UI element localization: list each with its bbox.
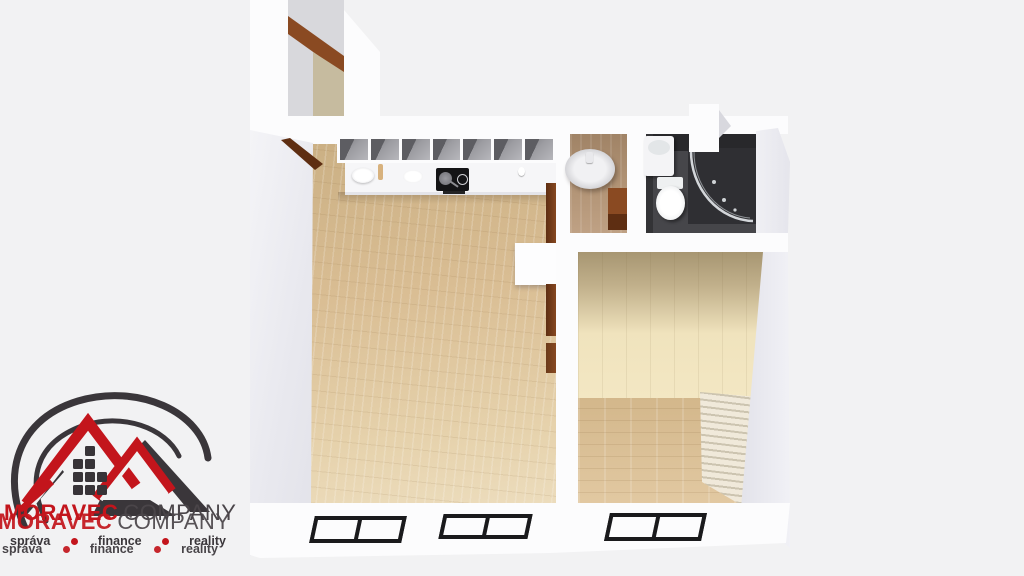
kitchen-upper-cabinets [337,136,556,163]
cabinet-compartment [433,139,461,160]
corridor-left-wall [250,0,288,132]
window-bedroom [604,513,707,541]
pedestal-washbasin [565,149,615,189]
counter-faucet [518,167,525,176]
shower-glass-arc [688,148,756,224]
cabinet-compartment [463,139,491,160]
window-living-left [309,516,407,543]
window-pane [482,518,528,535]
chimney-top [689,104,719,152]
kitchen-sink-bowl-2 [403,170,423,183]
cabinet-compartment [371,139,399,160]
upper-rooms-top-wall [556,116,788,134]
burner-ring [457,174,468,185]
cistern-lid [648,140,670,155]
chimney-side-face [719,110,731,138]
window-pane [354,520,402,539]
white-cabinet-box [515,243,557,285]
cooktop [436,168,469,191]
wc-wood-cabinet-front [608,214,628,230]
chimney-block [689,104,731,152]
divider-wall-lower [556,252,578,505]
cabinet-compartment [340,139,368,160]
window-pane [314,520,358,539]
kitchen-counter [345,163,556,195]
logo-services-ghost: správa finance reality [0,542,224,556]
window-pane [651,517,702,537]
cooktop-vent [443,191,465,194]
window-living-right [438,514,532,539]
logo-title-ghost: MORAVECCOMPANY [0,509,226,535]
cabinet-compartment [525,139,553,160]
floorplan-3d-render: MORAVECCOMPANY MORAVECCOMPANY správa fin… [0,0,1024,576]
bathroom-right-outer-wall [756,128,790,233]
basin-faucet [586,152,593,163]
toilet-cistern [644,136,674,176]
corner-shower [688,148,756,224]
entrance-corridor [288,0,344,132]
divider-wall-horizontal [556,233,788,252]
toilet-bowl [656,186,685,220]
counter-bottle [378,164,383,180]
cabinet-compartment [402,139,430,160]
window-pane [443,518,485,535]
cabinet-compartment [494,139,522,160]
corridor-right-wall [344,6,380,118]
loft-bed-platform [578,252,768,400]
toilet [653,177,688,221]
wc-wood-cabinet [608,188,628,230]
moravec-company-watermark: MORAVECCOMPANY MORAVECCOMPANY správa fin… [0,388,235,576]
kitchen-sink-bowl [352,168,374,183]
living-room-left-wall [250,130,313,557]
window-pane [609,517,656,537]
